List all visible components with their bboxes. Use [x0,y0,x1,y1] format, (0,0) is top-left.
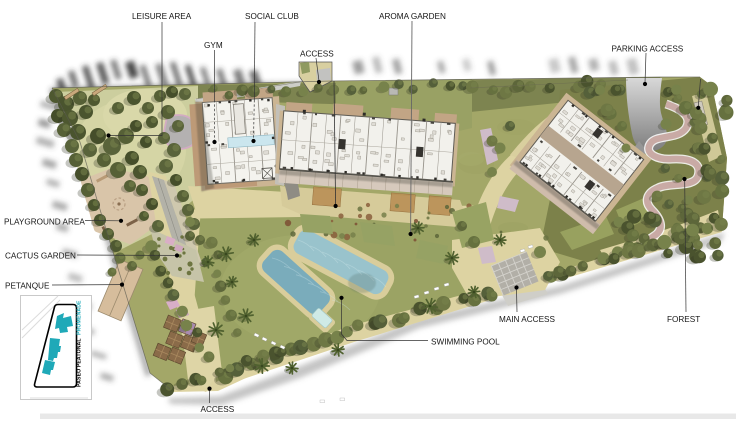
svg-text:PETANQUE: PETANQUE [5,282,50,291]
svg-text:MAIN ACCESS: MAIN ACCESS [499,315,555,324]
svg-text:ACCESS: ACCESS [201,405,235,414]
svg-text:ACCESS: ACCESS [300,50,334,59]
svg-text:SWIMMING POOL: SWIMMING POOL [431,338,500,347]
svg-text:CACTUS GARDEN: CACTUS GARDEN [5,252,76,261]
svg-text:SOCIAL CLUB: SOCIAL CLUB [245,12,299,21]
svg-text:PARKING ACCESS: PARKING ACCESS [612,45,684,54]
svg-text:PASEO PEATONAL: PASEO PEATONAL [77,338,83,387]
svg-text:PROMENADE: PROMENADE [77,300,83,335]
svg-text:GYM: GYM [204,41,223,50]
svg-text:LEISURE AREA: LEISURE AREA [132,12,192,21]
svg-text:AROMA GARDEN: AROMA GARDEN [379,12,446,21]
svg-text:PLAYGROUND AREA: PLAYGROUND AREA [4,218,85,227]
svg-text:FOREST: FOREST [667,315,700,324]
